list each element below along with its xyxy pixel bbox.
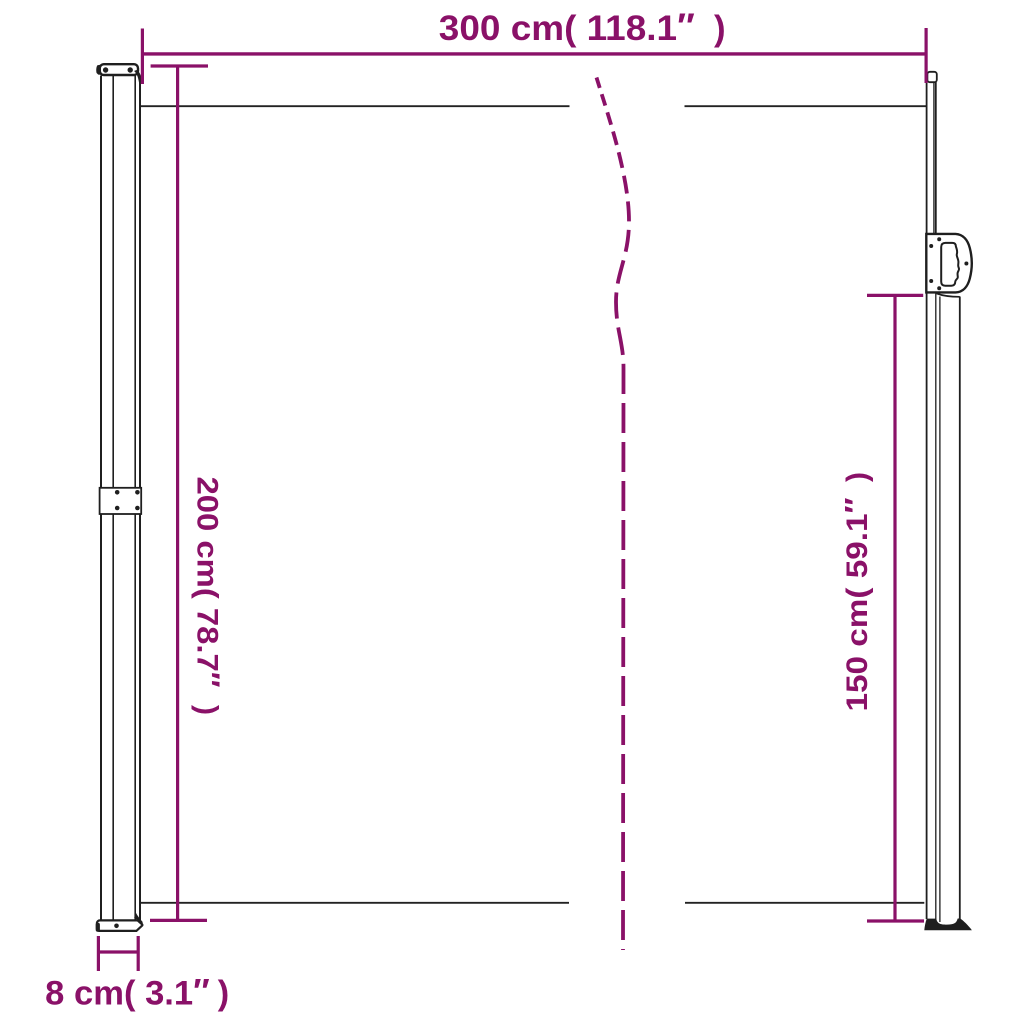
svg-text:): ) bbox=[218, 975, 229, 1013]
svg-text:200 cm( 78.7″: 200 cm( 78.7″ bbox=[191, 477, 226, 688]
svg-text:300 cm( 118.1″: 300 cm( 118.1″ bbox=[439, 7, 695, 48]
svg-text:): ) bbox=[714, 9, 726, 48]
svg-text:8 cm( 3.1″: 8 cm( 3.1″ bbox=[45, 973, 209, 1013]
svg-text:): ) bbox=[841, 472, 874, 482]
svg-text:150 cm( 59.1″: 150 cm( 59.1″ bbox=[840, 498, 875, 712]
svg-text:): ) bbox=[191, 705, 224, 715]
